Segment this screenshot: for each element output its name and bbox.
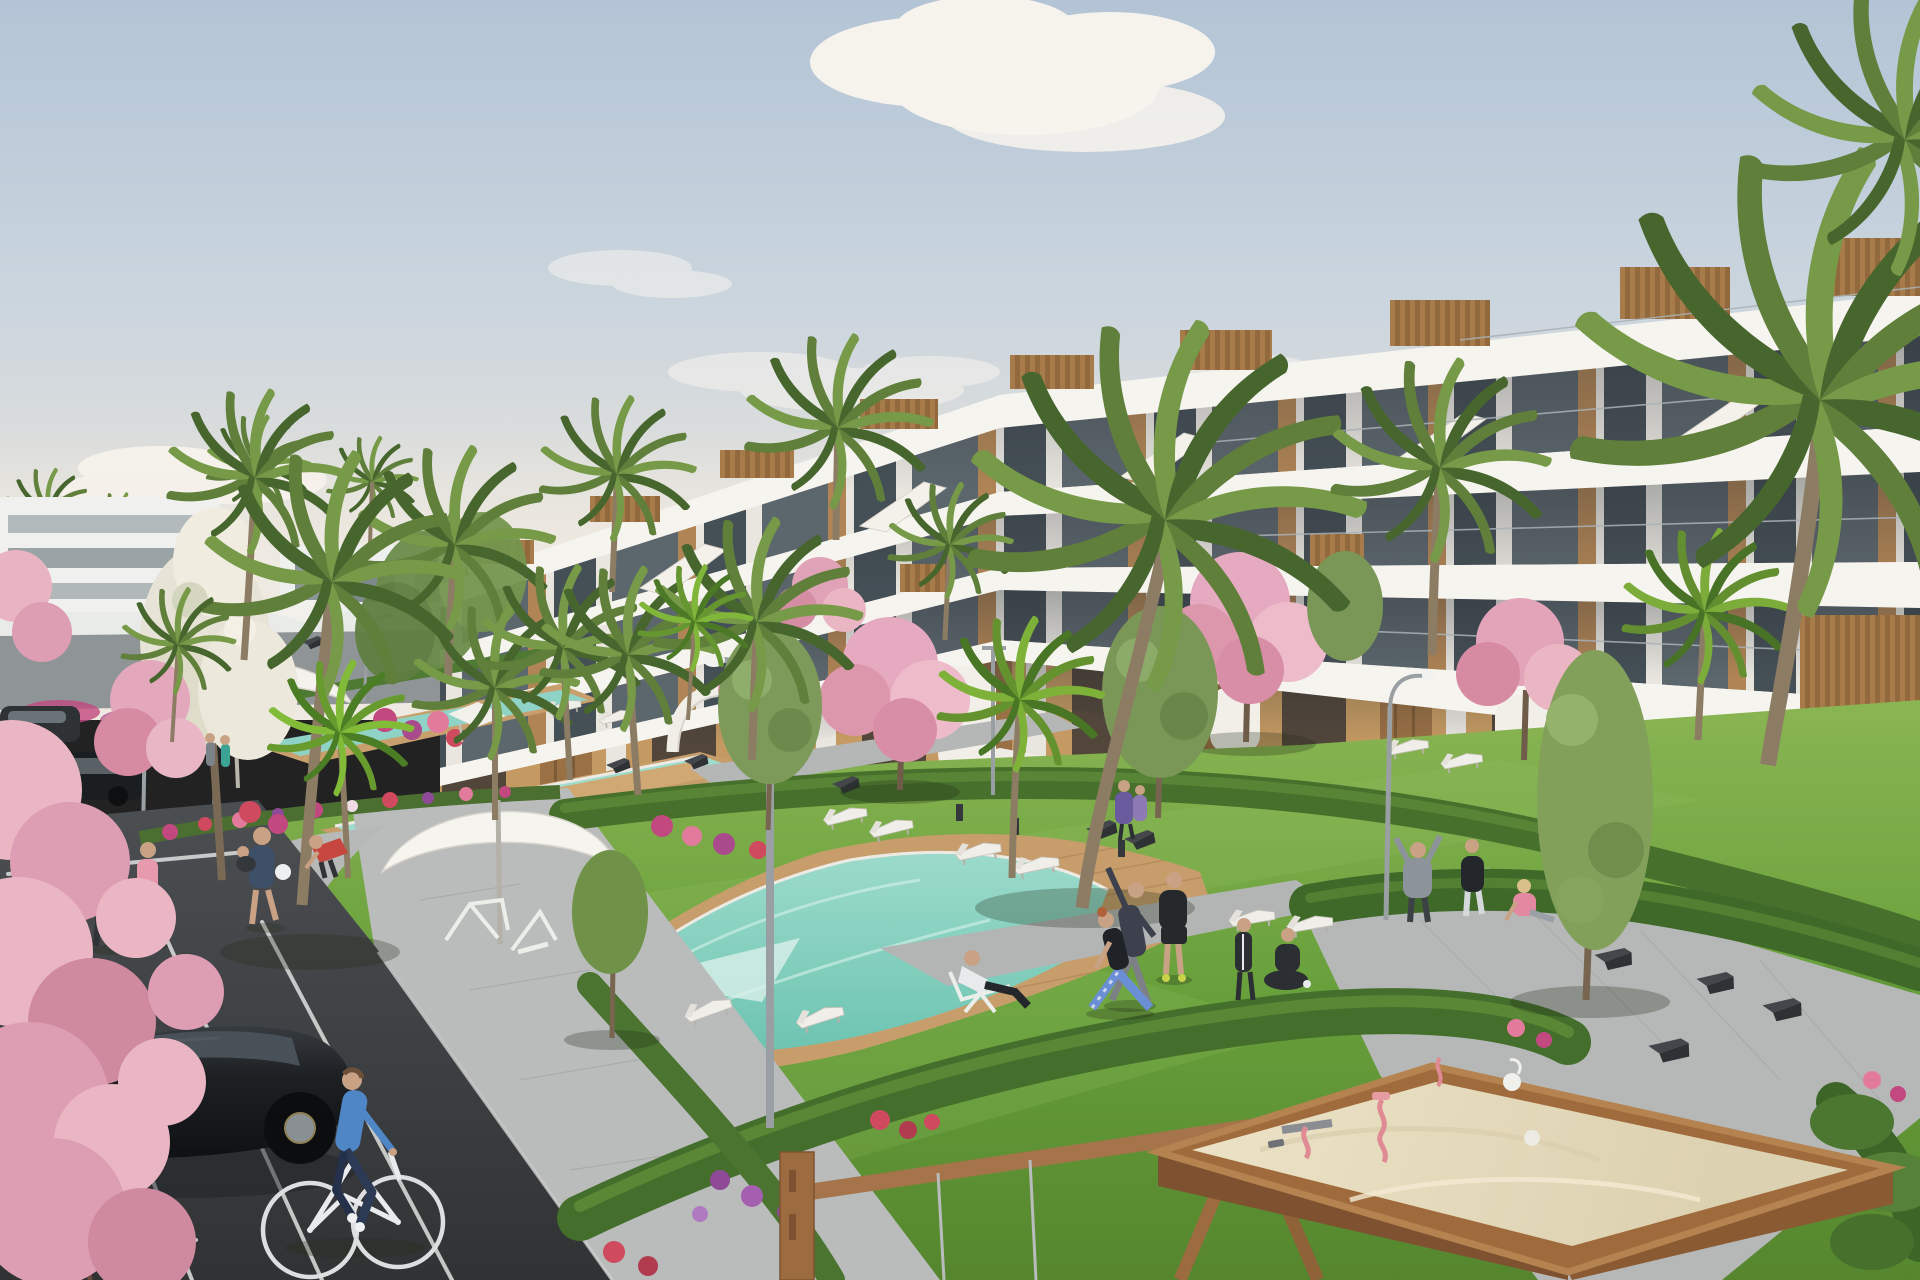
ball — [275, 864, 291, 880]
render-canvas — [0, 0, 1920, 1280]
distant-window-strip — [8, 515, 208, 533]
architectural-render — [0, 0, 1920, 1280]
wood-volume-right-upper — [1800, 615, 1920, 710]
